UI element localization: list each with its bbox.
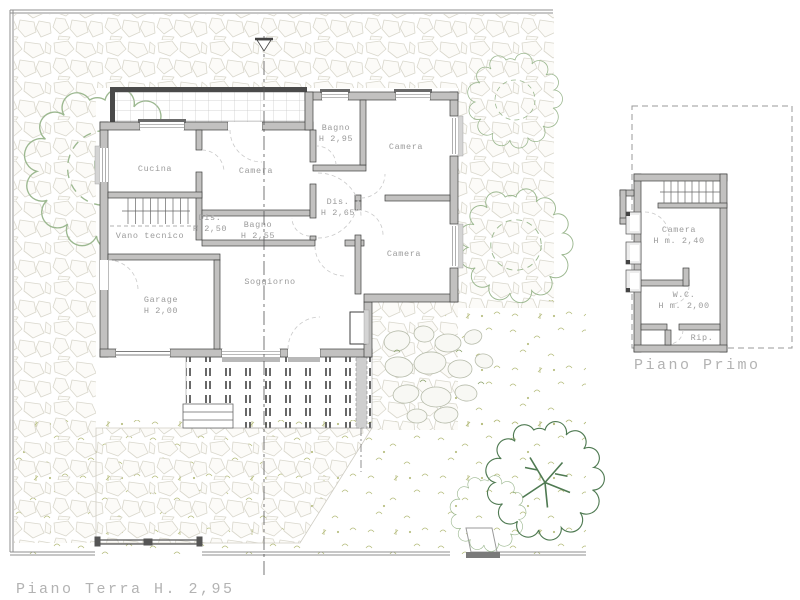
floor-plan-canvas: Cucina Camera Bagno H 2,95 Camera Dis. H…: [0, 0, 800, 600]
room-height-dis-265: H 2,65: [321, 208, 355, 218]
stone-paving-top: [14, 14, 554, 88]
room-label-camera-bottom-right: Camera: [387, 249, 421, 259]
room-height-dis-250: H 2,50: [193, 224, 227, 234]
first-floor-windows: [626, 212, 641, 292]
room-height-bagno-295: H 2,95: [319, 134, 353, 144]
room-label-pp-wc: W.C.: [673, 290, 696, 300]
room-label-soggiorno: Soggiorno: [244, 277, 295, 287]
room-label-bagno-255: Bagno: [244, 220, 273, 230]
floor-plan-drawing: Cucina Camera Bagno H 2,95 Camera Dis. H…: [0, 0, 800, 600]
stone-paving-left: [14, 88, 96, 543]
ground-floor-title: Piano Terra H. 2,95: [16, 581, 235, 598]
room-label-garage: Garage: [144, 295, 178, 305]
room-label-camera-top-right: Camera: [389, 142, 423, 152]
room-label-vano-tecnico: Vano tecnico: [116, 231, 184, 241]
first-floor-title: Piano Primo: [634, 357, 761, 374]
room-height-garage: H 2,00: [144, 306, 178, 316]
deck-side-strip: [356, 357, 367, 428]
first-floor-plan: [620, 106, 792, 352]
room-label-pp-camera: Camera: [662, 225, 696, 235]
fireplace: [350, 312, 366, 344]
room-height-bagno-255: H 2,55: [241, 231, 275, 241]
room-label-dis-265: Dis.: [327, 197, 350, 207]
porch-tiled: [112, 92, 305, 122]
room-label-bagno-295: Bagno: [322, 123, 351, 133]
room-height-pp-wc: H m. 2,00: [658, 301, 709, 311]
deck-steps: [183, 404, 233, 428]
stone-paving-right: [458, 88, 554, 308]
room-label-camera-center: Camera: [239, 166, 273, 176]
room-label-pp-rip: Rip.: [691, 333, 714, 343]
room-label-dis-250: Dis.: [199, 213, 222, 223]
room-height-pp-camera: H m. 2,40: [653, 236, 704, 246]
room-label-cucina: Cucina: [138, 164, 172, 174]
